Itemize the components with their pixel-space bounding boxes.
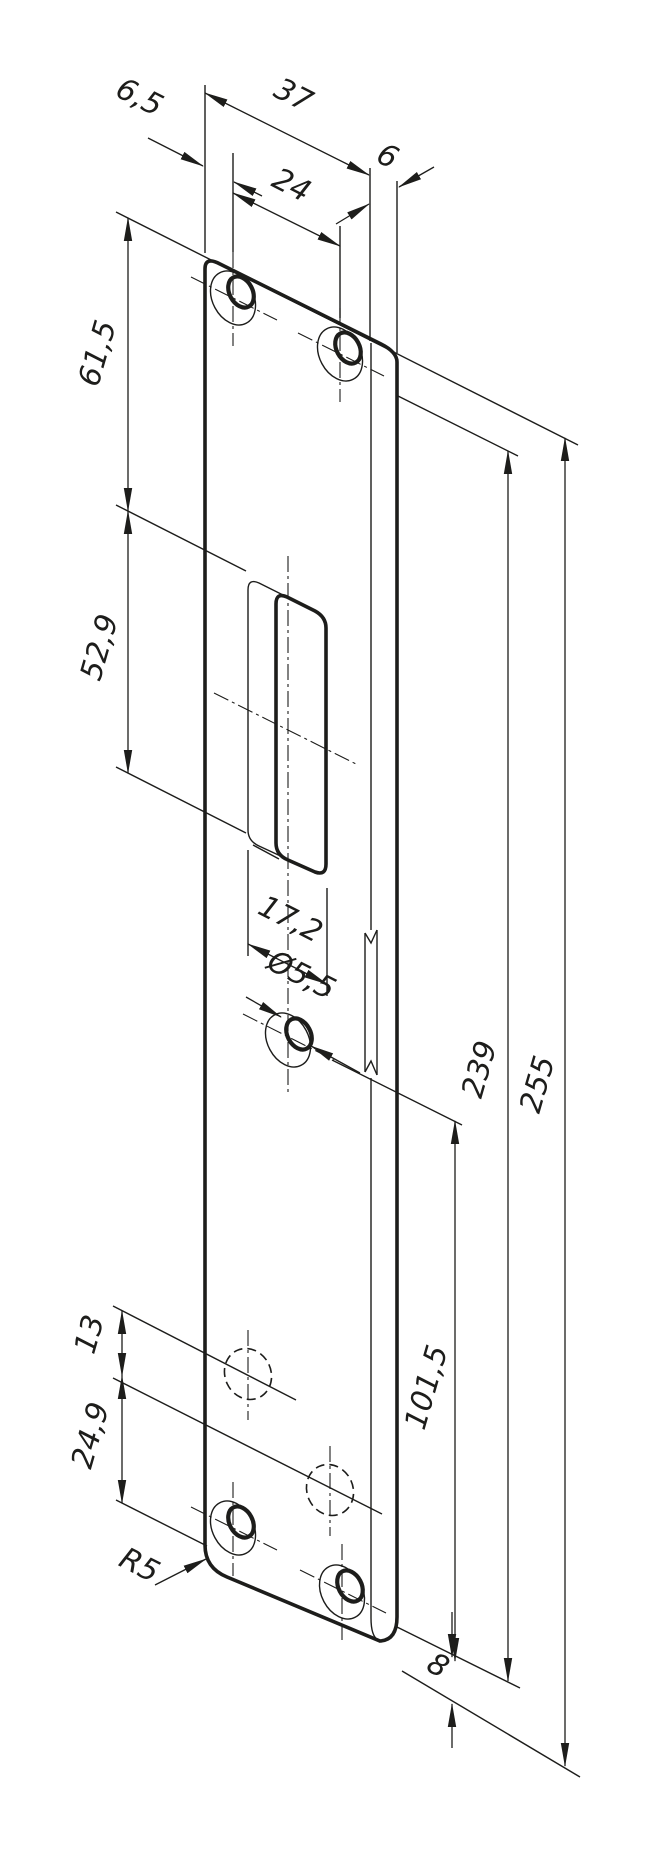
technical-drawing-page: 37 6,5 24 6 61,5 52,9 17,2 Ø5,5 13 24,9 … [0, 0, 650, 1857]
dim-label-bottom-section: 24,9 [65, 1398, 117, 1472]
plate-outline [205, 261, 397, 1641]
latch-cutout-recess [248, 582, 326, 873]
bore-bottom-right [332, 1566, 368, 1606]
dim-label-lip-overhang: 8 [421, 1646, 455, 1686]
dim-label-hidden-hole-spacing: 13 [68, 1311, 112, 1357]
dimension-lines [122, 93, 565, 1766]
dim-label-plate-width: 37 [268, 71, 318, 120]
hidden-holes [216, 1341, 362, 1524]
lip-break-symbol [365, 930, 377, 1075]
dim-label-top-to-cutout: 61,5 [72, 316, 124, 390]
bore-top-left [223, 272, 259, 312]
dimension-labels: 37 6,5 24 6 61,5 52,9 17,2 Ø5,5 13 24,9 … [65, 71, 563, 1686]
dim-label-cutout-width: 17,2 [253, 889, 328, 951]
latch-cutout-opening [276, 596, 326, 873]
dim-label-cutout-length: 52,9 [74, 610, 126, 684]
strike-plate-drawing: 37 6,5 24 6 61,5 52,9 17,2 Ø5,5 13 24,9 … [0, 0, 650, 1857]
dim-label-hole-to-bottom: 101,5 [398, 1341, 455, 1433]
dim-label-lip-width: 6 [371, 137, 404, 177]
bore-middle [281, 1014, 317, 1054]
bore-bottom-left [223, 1502, 259, 1542]
dim-label-hole-diameter: Ø5,5 [260, 943, 341, 1007]
dim-label-corner-radius: R5 [114, 1541, 165, 1590]
dim-label-face-length: 239 [455, 1037, 504, 1102]
dim-label-total-length: 255 [513, 1052, 562, 1117]
plate-face-outline [205, 261, 397, 1641]
dim-label-edge-to-hole: 6,5 [110, 71, 168, 124]
dim-label-top-hole-spacing: 24 [266, 161, 316, 210]
extension-lines [113, 85, 580, 1777]
fold-line-lower [371, 1078, 378, 1640]
